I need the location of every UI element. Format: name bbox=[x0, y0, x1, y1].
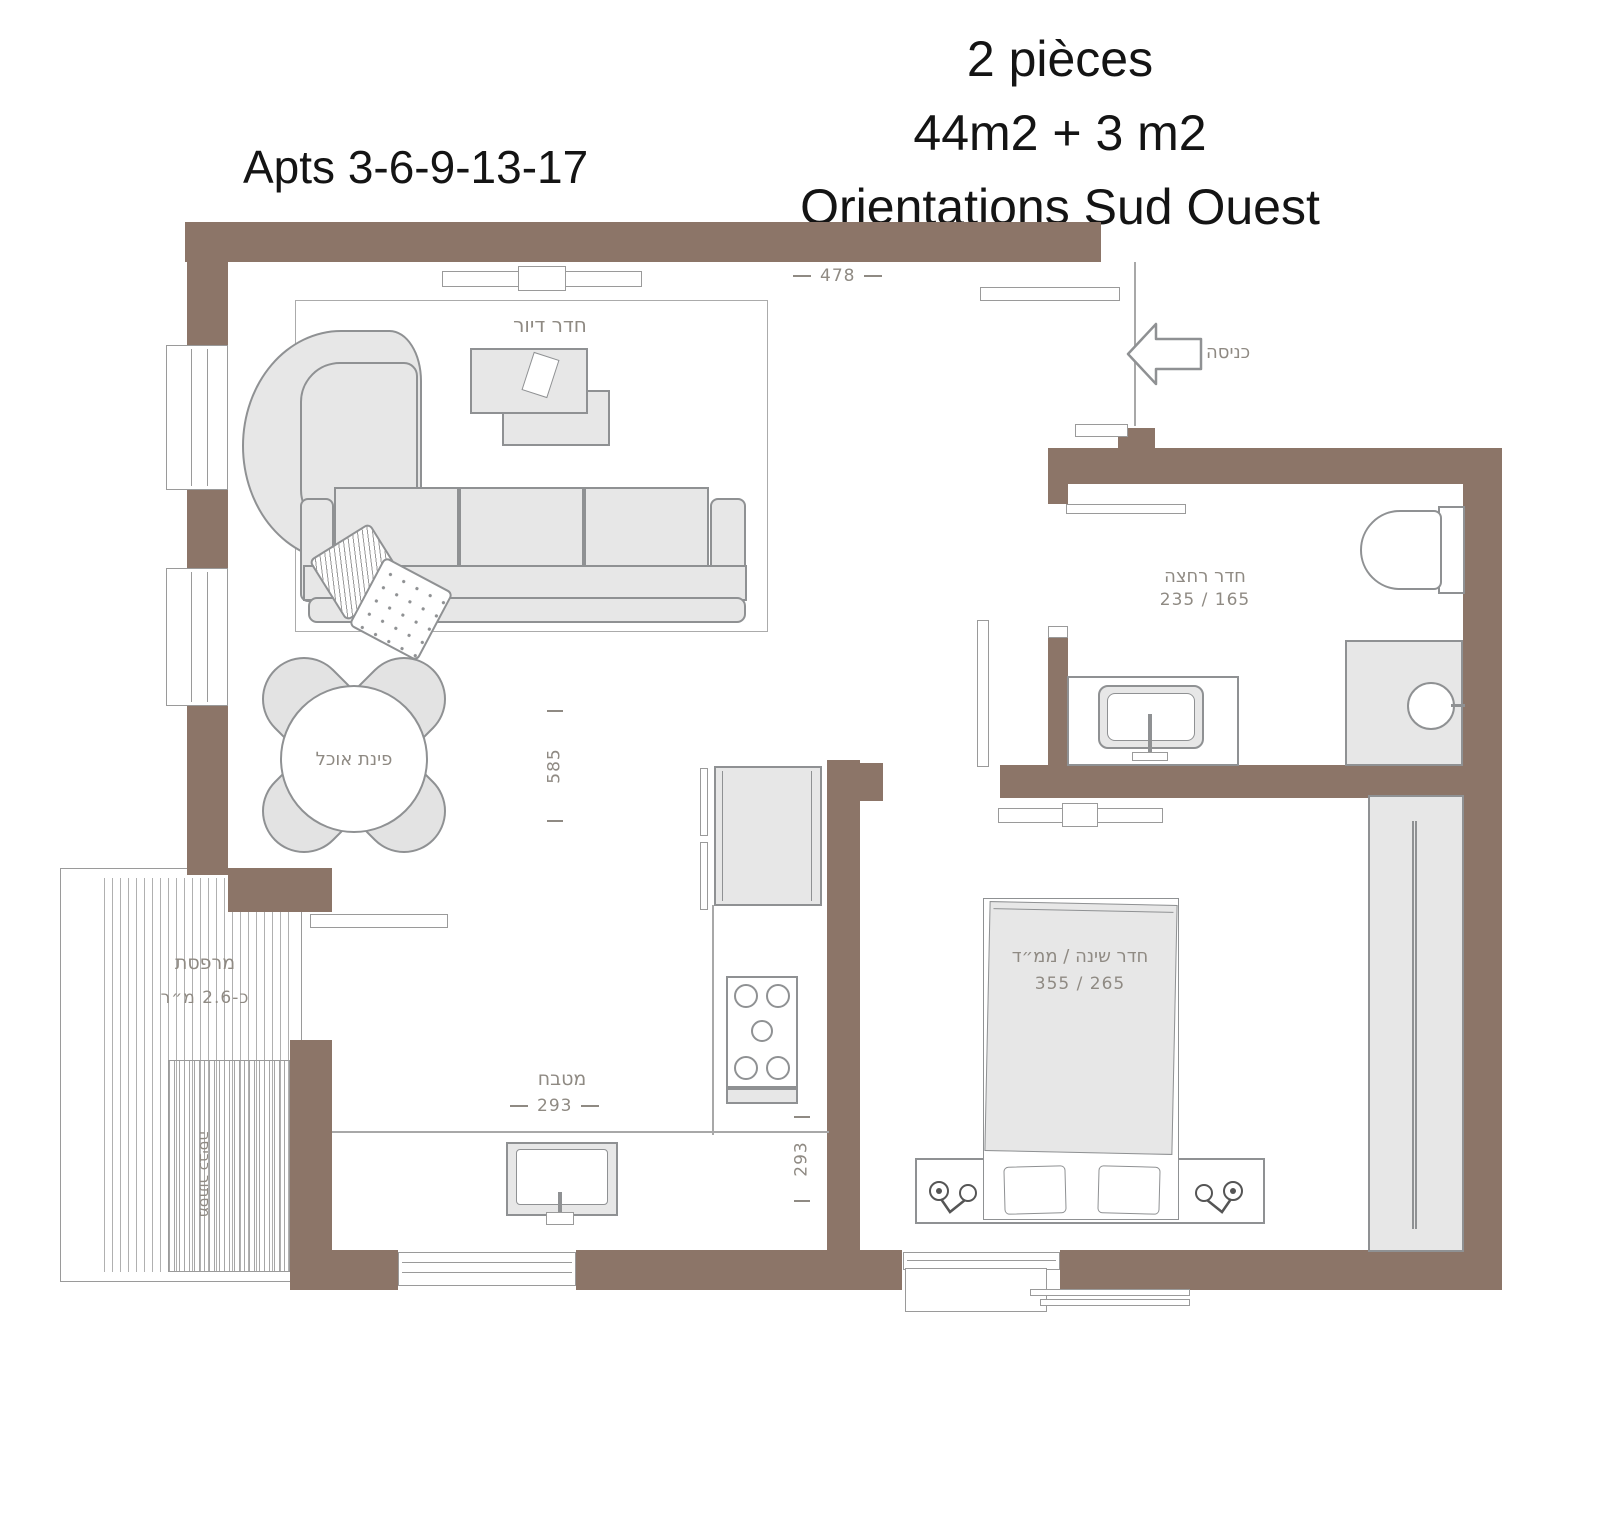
bedroom-rail bbox=[1040, 1299, 1190, 1306]
wall-bathroom-left-stub bbox=[1048, 484, 1068, 504]
balcony-area-label: כ-2.6 מ״ר bbox=[148, 988, 262, 1008]
wall-bottom-right bbox=[1060, 1250, 1502, 1290]
fridge-inner-line bbox=[722, 771, 723, 901]
wall-bedroom-top bbox=[1000, 765, 1465, 798]
tv-bedroom bbox=[1062, 803, 1098, 827]
entry-threshold bbox=[1075, 424, 1128, 437]
bathroom-door-leaf bbox=[1066, 504, 1186, 514]
sofa-cushion bbox=[584, 487, 709, 569]
kitchen-sink-basin bbox=[516, 1149, 608, 1205]
dim-living-depth: 585 bbox=[525, 710, 585, 822]
kitchen-label: מטבח bbox=[522, 1068, 602, 1090]
dim-value: 293 bbox=[792, 1141, 812, 1176]
bathroom-door-jamb bbox=[1048, 626, 1068, 638]
bed-blanket bbox=[984, 901, 1177, 1155]
stove-burner bbox=[734, 1056, 758, 1080]
refrigerator bbox=[714, 766, 822, 906]
wall-balcony-top bbox=[228, 868, 332, 912]
bedroom-rail bbox=[1030, 1289, 1190, 1296]
window-pane-line bbox=[402, 1272, 572, 1273]
window-pane-line bbox=[191, 572, 192, 702]
dim-kitchen-depth: 293 bbox=[780, 1116, 824, 1202]
bed-pillow bbox=[1003, 1165, 1066, 1215]
laundry-label: מסתור כביסה bbox=[196, 1074, 214, 1274]
window-pane-line bbox=[191, 349, 192, 486]
stove bbox=[726, 976, 798, 1088]
dim-tick bbox=[794, 1200, 810, 1202]
dim-value: 585 bbox=[545, 748, 565, 783]
bedroom-ac-platform bbox=[905, 1268, 1047, 1312]
toilet-tank bbox=[1438, 506, 1465, 594]
sofa-cushion bbox=[459, 487, 584, 569]
wall-left-upper bbox=[187, 258, 228, 348]
dim-top-width: 478 bbox=[793, 266, 882, 286]
kitchen-window bbox=[398, 1252, 576, 1286]
stove-burner bbox=[766, 1056, 790, 1080]
bed-pillow bbox=[1097, 1165, 1160, 1215]
entrance-arrow-icon bbox=[1126, 322, 1204, 386]
blanket-fold-line bbox=[993, 908, 1173, 913]
stove-burner bbox=[751, 1020, 773, 1042]
dim-tick bbox=[581, 1105, 599, 1107]
living-room-label: חדר דיור bbox=[480, 313, 620, 337]
wall-left-middle bbox=[187, 488, 228, 570]
dim-tick bbox=[547, 820, 563, 822]
dim-tick bbox=[794, 1116, 810, 1118]
living-window-lower bbox=[166, 568, 228, 706]
stove-burner bbox=[766, 984, 790, 1008]
dim-tick bbox=[793, 275, 811, 277]
fridge-door-mark bbox=[700, 768, 708, 836]
dining-table: פינת אוכל bbox=[280, 685, 428, 833]
dim-value: 293 bbox=[537, 1096, 572, 1116]
apartments-title: Apts 3-6-9-13-17 bbox=[243, 140, 588, 194]
bedroom-label: חדר שינה / ממ״ד bbox=[1000, 946, 1160, 967]
kitchen-faucet-base bbox=[546, 1212, 574, 1225]
wall-top bbox=[185, 222, 1101, 262]
balcony-label: מרפסת bbox=[150, 952, 260, 974]
bedside-lamp-icon bbox=[1192, 1178, 1244, 1218]
balcony-sliding-door bbox=[310, 914, 448, 928]
kitchen-counter-edge-h bbox=[332, 1131, 714, 1133]
fridge-inner-line bbox=[811, 771, 812, 901]
washing-machine-drum bbox=[1407, 682, 1455, 730]
washing-machine-pipe bbox=[1451, 704, 1465, 707]
tv-living bbox=[518, 266, 566, 291]
plan-info-line2: 44m2 + 3 m2 bbox=[720, 96, 1400, 170]
window-pane-line bbox=[207, 349, 208, 486]
entrance-label: כניסה bbox=[1206, 342, 1250, 363]
living-window-upper bbox=[166, 345, 228, 490]
floor-plan: Apts 3-6-9-13-17 2 pièces 44m2 + 3 m2 Or… bbox=[0, 0, 1600, 1520]
wall-kitchen-bedroom bbox=[827, 760, 860, 1290]
bathroom-dims-label: 235 / 165 bbox=[1140, 590, 1270, 610]
dim-kitchen-width: 293 bbox=[510, 1096, 599, 1116]
wall-left-lower bbox=[187, 703, 228, 875]
dim-tick bbox=[547, 710, 563, 712]
window-pane-line bbox=[207, 572, 208, 702]
kitchen-sink bbox=[506, 1142, 618, 1216]
dim-tick bbox=[864, 275, 882, 277]
bathroom-label: חדר רחצה bbox=[1140, 566, 1270, 587]
bedroom-door-leaf bbox=[977, 620, 989, 767]
wall-kitchen-step bbox=[857, 763, 883, 801]
entry-shelf bbox=[980, 287, 1120, 301]
dim-tick bbox=[510, 1105, 528, 1107]
bedside-lamp-icon bbox=[928, 1178, 980, 1218]
washing-machine bbox=[1345, 640, 1463, 766]
plan-info-line1: 2 pièces bbox=[720, 22, 1400, 96]
window-pane-line bbox=[402, 1262, 572, 1263]
bathroom-faucet-bar bbox=[1132, 752, 1168, 761]
wall-bathroom-left bbox=[1048, 636, 1068, 766]
wall-right bbox=[1463, 484, 1502, 1290]
wall-bottom-left bbox=[290, 1250, 398, 1290]
plan-info-title: 2 pièces 44m2 + 3 m2 Orientations Sud Ou… bbox=[720, 22, 1400, 244]
stove-base bbox=[726, 1088, 798, 1104]
wardrobe-door-line bbox=[1412, 821, 1417, 1229]
wall-bathroom-top bbox=[1048, 448, 1502, 484]
toilet-bowl bbox=[1360, 510, 1442, 590]
window-pane-line bbox=[907, 1260, 1056, 1261]
stove-burner bbox=[734, 984, 758, 1008]
dim-value: 478 bbox=[820, 266, 855, 286]
laundry-screen bbox=[168, 1060, 290, 1272]
dining-label: פינת אוכל bbox=[316, 749, 393, 770]
wardrobe bbox=[1368, 795, 1464, 1252]
bedroom-dims-label: 355 / 265 bbox=[1000, 974, 1160, 994]
kitchen-counter-edge-v bbox=[712, 905, 714, 1135]
fridge-door-mark bbox=[700, 842, 708, 910]
